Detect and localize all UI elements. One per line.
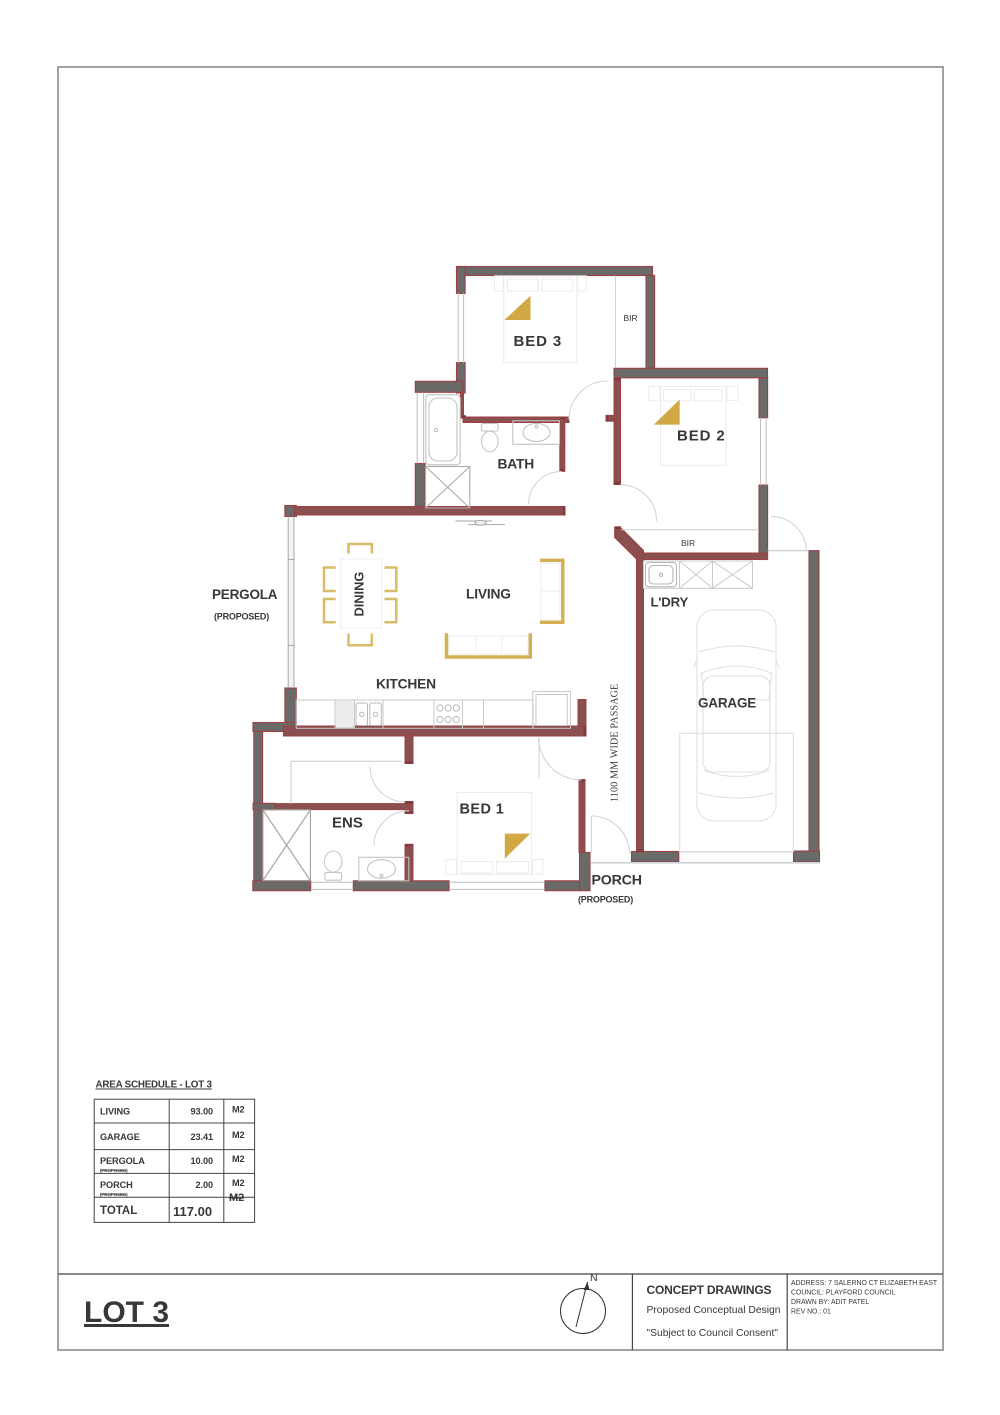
svg-text:M2: M2 <box>232 1178 245 1188</box>
svg-text:PORCH: PORCH <box>100 1180 133 1190</box>
svg-text:BIR: BIR <box>681 538 695 548</box>
svg-text:REV NO.: 01: REV NO.: 01 <box>791 1309 831 1316</box>
svg-text:(PROPOSED): (PROPOSED) <box>214 612 269 622</box>
svg-text:LIVING: LIVING <box>100 1107 130 1117</box>
svg-text:(PROPOSED): (PROPOSED) <box>100 1192 128 1197</box>
svg-text:COUNCIL: PLAYFORD COUNCIL: COUNCIL: PLAYFORD COUNCIL <box>791 1290 896 1297</box>
svg-text:M2: M2 <box>232 1105 245 1115</box>
svg-text:BED 1: BED 1 <box>460 802 505 818</box>
svg-text:ENS: ENS <box>332 815 363 832</box>
svg-text:ADDRESS: 7 SALERNO CT ELIZABET: ADDRESS: 7 SALERNO CT ELIZABETH EAST <box>791 1280 938 1287</box>
svg-text:DRAWN BY: ADIT PATEL: DRAWN BY: ADIT PATEL <box>791 1299 869 1306</box>
svg-text:PERGOLA: PERGOLA <box>100 1156 145 1166</box>
svg-text:BED 3: BED 3 <box>514 333 563 350</box>
svg-text:LOT 3: LOT 3 <box>84 1296 169 1329</box>
svg-text:KITCHEN: KITCHEN <box>376 677 436 692</box>
svg-text:(PROPOSED): (PROPOSED) <box>100 1168 128 1173</box>
svg-text:"Subject to Council Consent": "Subject to Council Consent" <box>647 1328 779 1339</box>
svg-text:M2: M2 <box>232 1154 245 1164</box>
svg-text:GARAGE: GARAGE <box>100 1132 140 1142</box>
svg-text:23.41: 23.41 <box>191 1132 214 1142</box>
svg-text:PERGOLA: PERGOLA <box>212 587 278 602</box>
svg-text:BATH: BATH <box>498 457 535 472</box>
svg-text:93.00: 93.00 <box>191 1107 214 1117</box>
svg-text:1100 MM WIDE PASSAGE: 1100 MM WIDE PASSAGE <box>610 684 621 802</box>
svg-text:M2: M2 <box>232 1130 245 1140</box>
svg-text:DINING: DINING <box>352 572 367 617</box>
svg-text:GARAGE: GARAGE <box>698 696 756 711</box>
svg-text:LIVING: LIVING <box>466 587 511 602</box>
svg-text:BIR: BIR <box>624 313 638 323</box>
svg-text:CONCEPT DRAWINGS: CONCEPT DRAWINGS <box>647 1283 772 1297</box>
svg-text:BED 2: BED 2 <box>677 428 726 445</box>
svg-text:(PROPOSED): (PROPOSED) <box>578 895 633 905</box>
svg-text:117.00: 117.00 <box>173 1204 212 1219</box>
svg-text:10.00: 10.00 <box>191 1156 214 1166</box>
svg-text:PORCH: PORCH <box>592 873 642 889</box>
svg-text:2.00: 2.00 <box>196 1180 213 1190</box>
svg-text:Proposed Conceptual Design: Proposed Conceptual Design <box>647 1305 781 1316</box>
svg-text:N: N <box>590 1272 598 1284</box>
svg-text:TOTAL: TOTAL <box>100 1205 137 1217</box>
svg-text:L'DRY: L'DRY <box>651 595 689 610</box>
svg-text:M2: M2 <box>229 1192 244 1204</box>
svg-text:AREA SCHEDULE - LOT 3: AREA SCHEDULE - LOT 3 <box>96 1080 213 1091</box>
